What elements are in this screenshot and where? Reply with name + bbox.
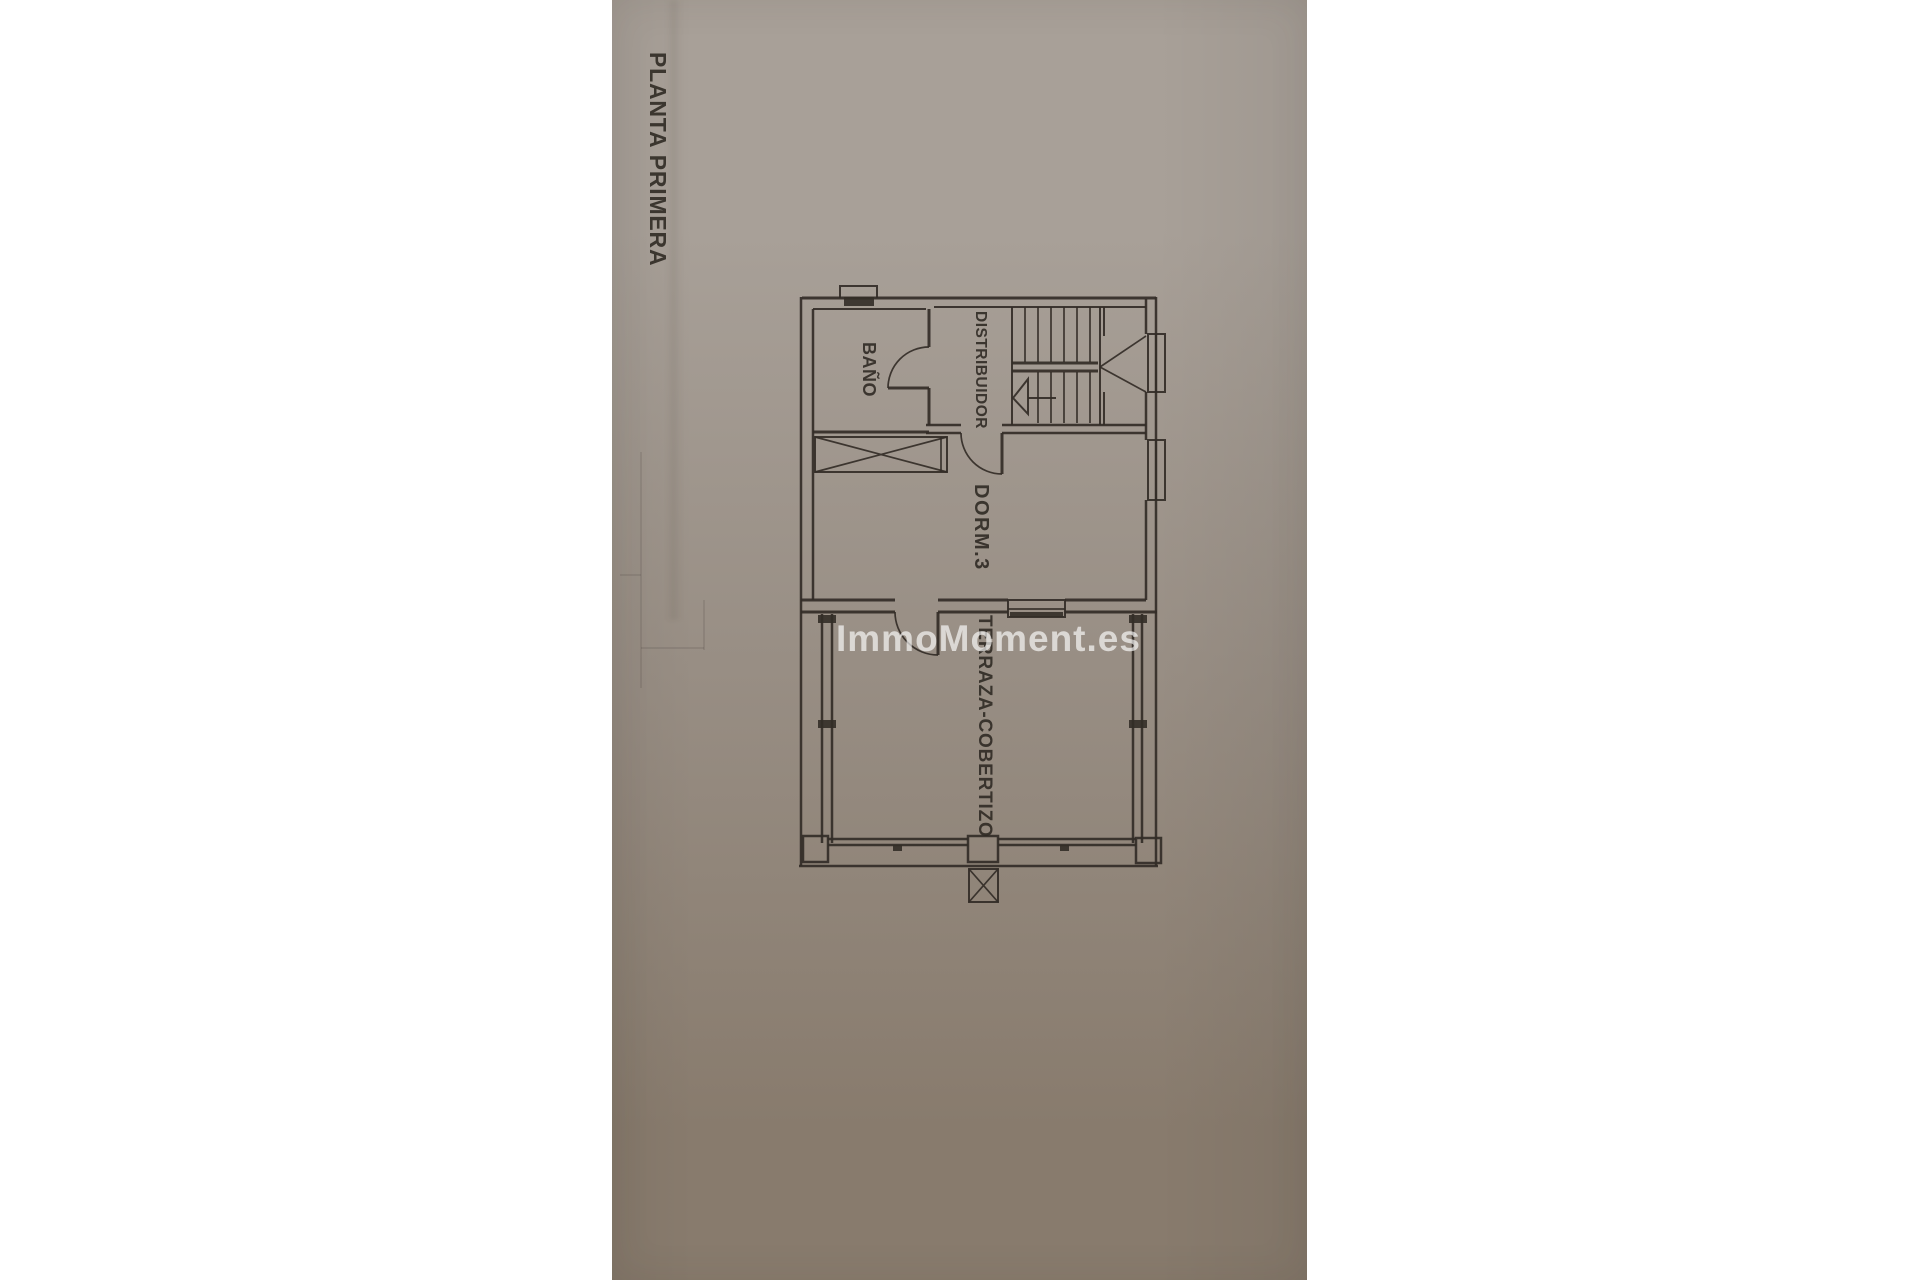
terrace-pilaster-mark [818, 615, 836, 623]
photographed-floor-plan-page: PLANTA PRIMERA BAÑO DISTRIBUIDOR DORM.3 … [0, 0, 1920, 1280]
agency-watermark: ImmoMoment.es [836, 618, 1141, 660]
plan-title: PLANTA PRIMERA [646, 52, 670, 266]
terrace-pilaster-mark [1129, 720, 1147, 728]
terrace-pilaster-mark [818, 720, 836, 728]
terrace-pillar-center [968, 836, 998, 862]
staircase [1012, 307, 1146, 425]
stair-treads-upper [1025, 307, 1090, 362]
terrace-pillar-left [803, 836, 828, 862]
porch-column-x-mark [969, 869, 998, 902]
stair-direction-arrow-head [1013, 379, 1028, 414]
hallway-walls [926, 425, 1146, 474]
terrace-parapet-left [828, 839, 968, 845]
room-label-bedroom: DORM.3 [970, 484, 991, 571]
chimney-lintel [844, 297, 874, 306]
wardrobe-x-mark [815, 437, 947, 472]
stairwell-window-splay [1100, 336, 1146, 392]
hallway-door-swing-arc [961, 433, 1002, 474]
room-label-hallway: DISTRIBUIDOR [972, 311, 988, 429]
bathroom-door-swing-arc [888, 347, 929, 388]
ghost-bleedthrough-lines [620, 452, 704, 688]
terrace-parapet-right [998, 839, 1136, 845]
room-label-bathroom: BAÑO [859, 342, 878, 397]
